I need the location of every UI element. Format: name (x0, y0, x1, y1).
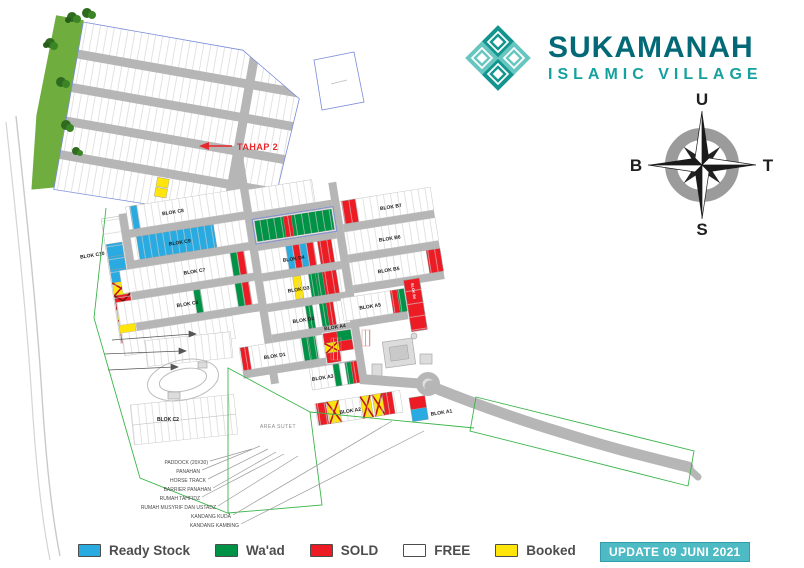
ready-stock-swatch (78, 544, 101, 557)
knot-icon (458, 20, 538, 96)
area-sutet-label: AREA SUTET (260, 424, 296, 430)
brand-name: SUKAMANAH (548, 33, 763, 63)
booked-plot (156, 177, 169, 188)
compass-west-label: B (630, 156, 642, 175)
brand-text: SUKAMANAH ISLAMIC VILLAGE (548, 33, 763, 84)
booked-swatch (495, 544, 518, 557)
tahap2-label: TAHAP 2 (237, 142, 278, 152)
free-swatch (403, 544, 426, 557)
facility-label: HORSE TRACK (170, 478, 207, 484)
legend-item-ready-stock: Ready Stock (78, 543, 190, 558)
facility-label: KANDANG KUDA (191, 514, 232, 520)
booked-plot (154, 187, 167, 198)
legend-label: Booked (526, 543, 576, 558)
legend-item-sold: SOLD (310, 543, 379, 558)
access-road (360, 372, 698, 477)
barrier-strip (331, 338, 341, 360)
legend-item-free: FREE (403, 543, 470, 558)
facility-label: PANAHAN (176, 469, 200, 475)
legend-label: Wa'ad (246, 543, 285, 558)
siteplan-poster: TAHAP 2 (0, 0, 804, 568)
waad-swatch (215, 544, 238, 557)
facility-label: KANDANG KAMBING (190, 523, 239, 529)
update-badge: UPDATE 09 JUNI 2021 (600, 542, 750, 562)
barrier-strip (362, 330, 370, 346)
compass-south-label: S (696, 220, 707, 239)
mosque-complex (372, 333, 432, 378)
compass-east-label: T (763, 156, 774, 175)
legend-label: SOLD (341, 543, 379, 558)
legend-label: FREE (434, 543, 470, 558)
block-label: BLOK A1 (430, 408, 453, 417)
block-label: BLOK C2 (157, 417, 179, 423)
brand-logo: SUKAMANAH ISLAMIC VILLAGE (458, 20, 763, 96)
legend-item-waad: Wa'ad (215, 543, 285, 558)
legend-label: Ready Stock (109, 543, 190, 558)
facility-label: RUMAH TAHFIDZ (160, 496, 200, 502)
facility-label: BARRIER PANAHAN (164, 487, 212, 493)
sold-swatch (310, 544, 333, 557)
facility-label: RUMAH MUSYRIF DAN USTADZ (141, 505, 216, 511)
facility-label: PADDOCK (20X30) (164, 460, 208, 466)
vacant-parcel-outline (314, 52, 364, 110)
legend-item-booked: Booked (495, 543, 576, 558)
legend: Ready Stock Wa'ad SOLD FREE Booked (78, 543, 576, 558)
brand-tagline: ISLAMIC VILLAGE (548, 66, 763, 84)
compass-rose: U S B T (630, 90, 774, 239)
